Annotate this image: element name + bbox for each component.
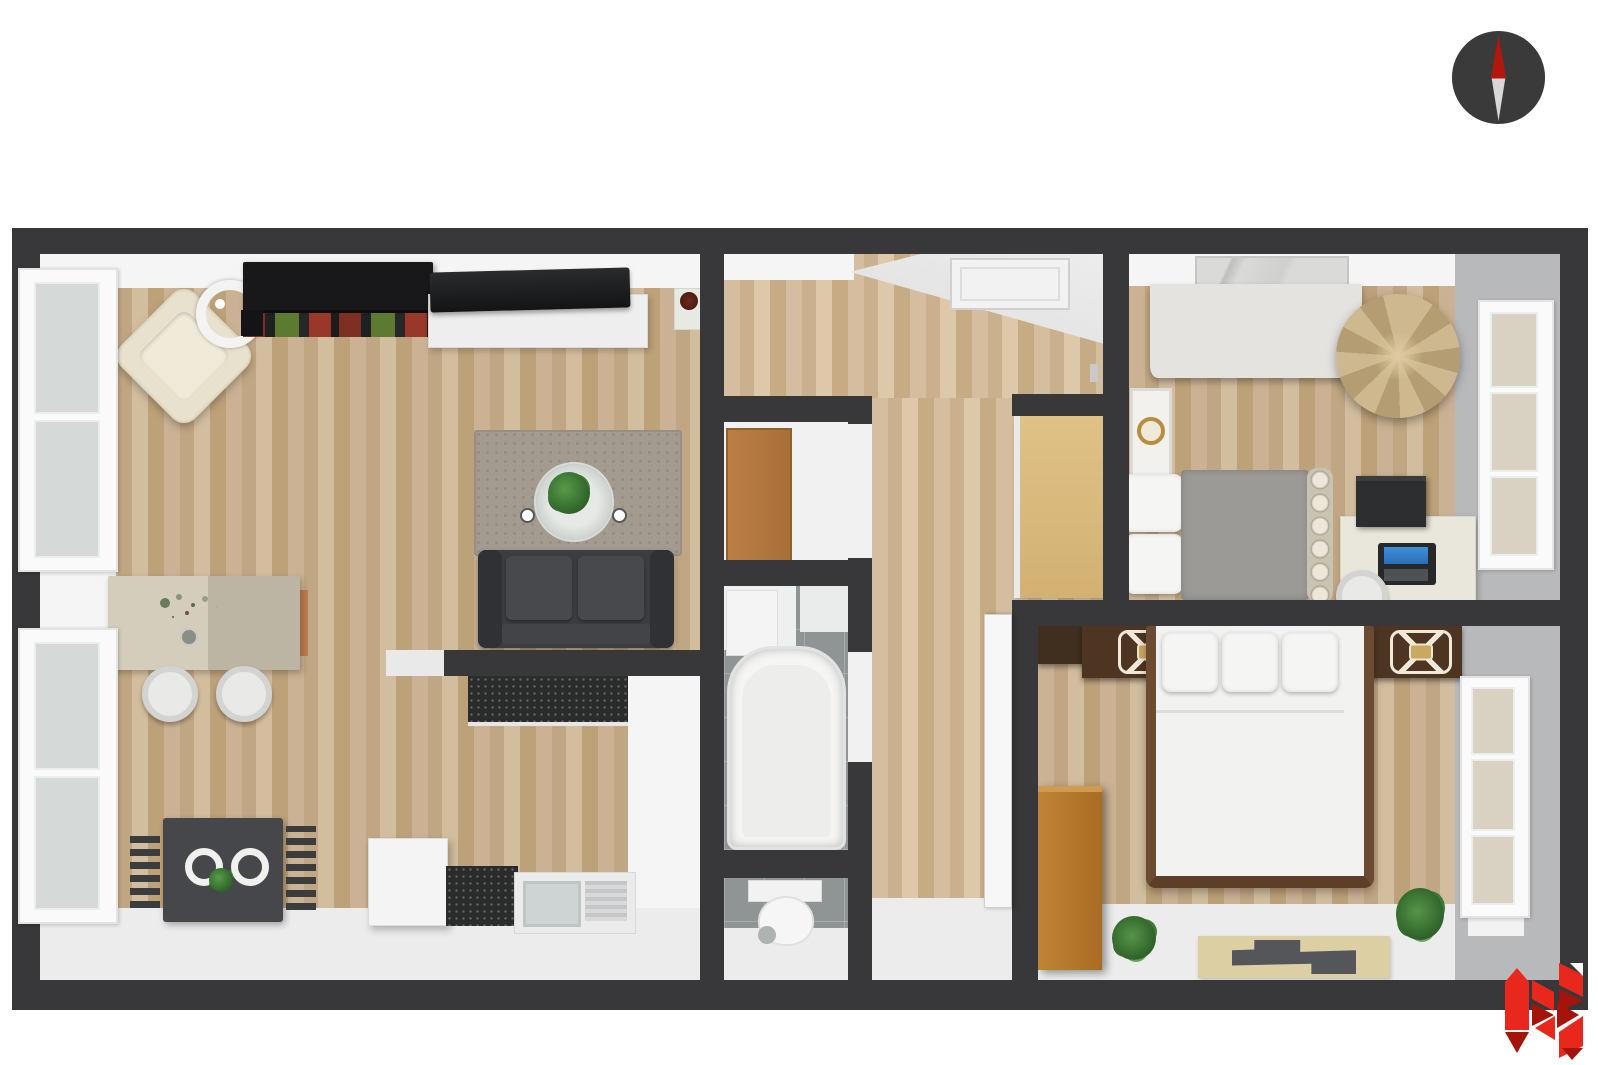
sink	[523, 881, 581, 927]
bookshelf	[243, 262, 433, 314]
mat-dark-shape	[1232, 940, 1356, 974]
bathroom-door-opening	[848, 652, 872, 762]
dining-table	[108, 576, 300, 670]
table-lamp-right	[1390, 630, 1452, 674]
gray-duvet	[1181, 470, 1309, 600]
cup-icon	[612, 508, 627, 523]
bathroom-white-strip	[800, 586, 848, 632]
wall-master-left	[1012, 600, 1038, 982]
corridor-white-floor	[872, 898, 1012, 982]
plant-icon	[1396, 888, 1444, 940]
breakfast-table	[163, 818, 283, 922]
double-bed	[1146, 626, 1374, 888]
tall-cabinet	[1014, 416, 1109, 598]
cup-icon	[520, 508, 535, 523]
closet-door	[726, 428, 792, 562]
white-cube-table	[368, 838, 448, 926]
spindle-footboard	[1307, 468, 1333, 602]
ceiling-vent	[950, 258, 1070, 310]
drainboard	[585, 881, 627, 921]
red-plant-icon	[680, 292, 698, 310]
orange-wardrobe	[1038, 786, 1102, 970]
door-handle-icon	[1090, 364, 1098, 382]
window-living-bottom	[18, 628, 118, 924]
bookshelf-books	[243, 310, 433, 337]
tv	[430, 267, 631, 312]
speaker	[241, 310, 263, 336]
pillow	[1162, 632, 1218, 692]
pillow	[1222, 632, 1278, 692]
kitchen-black-counter	[446, 866, 518, 926]
sink-counter	[514, 872, 636, 934]
sofa	[478, 550, 674, 648]
wall-closet-bath	[700, 560, 872, 586]
coffee-table-plant	[548, 472, 590, 514]
wall-corridor-bedroom	[1103, 228, 1129, 626]
table-plant	[209, 868, 233, 892]
dining-chair	[216, 666, 272, 722]
floor-mat	[1198, 936, 1390, 978]
printer	[1356, 476, 1426, 527]
brand-logo	[1459, 952, 1592, 1064]
kitchen-wall-face	[628, 676, 700, 908]
dining-chair	[142, 666, 198, 722]
window-bedroom-master	[1460, 676, 1530, 918]
wall-bath-wc	[700, 850, 872, 878]
wall-closet-top	[700, 396, 872, 422]
pillow	[1123, 474, 1183, 532]
wall-bedrooms-divider	[1012, 600, 1560, 626]
wall-outer-right	[1560, 228, 1588, 1010]
bathtub	[727, 646, 846, 850]
dresser	[1150, 284, 1362, 378]
half-wall-white-cap	[386, 650, 448, 676]
closet-opening	[848, 424, 872, 558]
flush-button	[758, 926, 776, 944]
vase	[180, 628, 198, 646]
pillow	[1125, 534, 1183, 594]
duvet-fold	[1156, 710, 1344, 713]
entry-top-wall-face	[724, 254, 854, 280]
window-bedroom-small	[1478, 300, 1554, 570]
compass-icon	[1450, 29, 1547, 126]
floor-plan-canvas	[0, 0, 1598, 1065]
plant-icon	[1112, 916, 1156, 960]
plate-icon	[231, 848, 269, 886]
window-living-top	[18, 268, 118, 572]
bean-bag	[1336, 294, 1460, 418]
laptop	[1378, 543, 1436, 585]
open-door-leaf	[984, 614, 1012, 908]
half-wall-kitchen	[444, 650, 700, 676]
single-bed	[1123, 468, 1335, 602]
pillow	[1282, 632, 1338, 692]
slat-chair-right	[286, 826, 316, 910]
wall-outer-top	[12, 228, 1588, 254]
gold-ring-decor	[1137, 417, 1165, 445]
black-countertop	[468, 676, 628, 726]
wall-outer-bottom	[12, 980, 1588, 1010]
flower-arrangement	[160, 598, 170, 608]
wall-cabinet-nook	[1012, 394, 1129, 416]
slat-chair-left	[130, 832, 160, 908]
